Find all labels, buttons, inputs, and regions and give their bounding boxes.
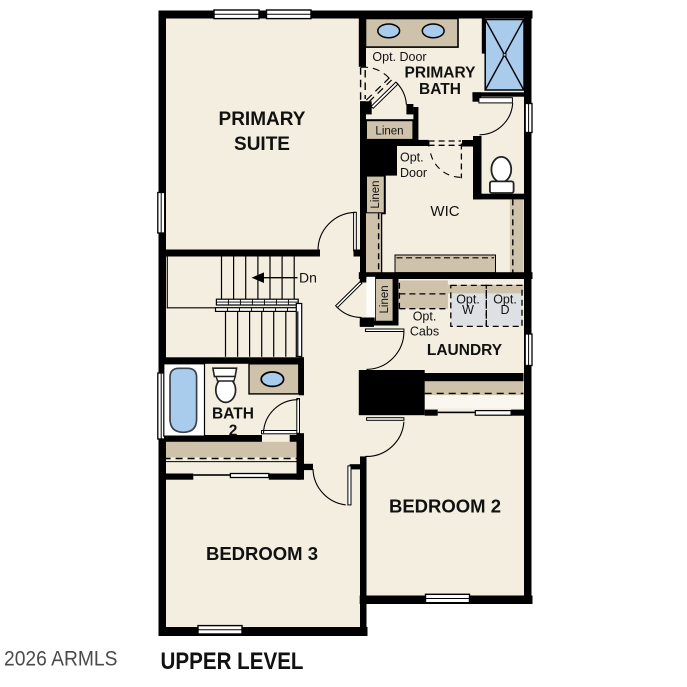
svg-text:SUITE: SUITE [234, 134, 290, 155]
svg-text:Opt. Door: Opt. Door [372, 50, 426, 64]
svg-text:LAUNDRY: LAUNDRY [427, 342, 503, 359]
svg-text:BEDROOM 3: BEDROOM 3 [206, 543, 318, 564]
svg-text:Opt.: Opt. [400, 151, 424, 165]
svg-text:PRIMARY: PRIMARY [219, 109, 306, 130]
svg-text:2: 2 [229, 423, 238, 440]
svg-text:Linen: Linen [370, 180, 382, 208]
svg-text:D: D [500, 303, 509, 317]
svg-text:Door: Door [400, 166, 427, 180]
svg-text:Linen: Linen [379, 285, 391, 313]
svg-text:Cabs: Cabs [410, 325, 439, 339]
svg-text:BEDROOM 2: BEDROOM 2 [389, 496, 501, 517]
svg-text:BATH: BATH [419, 81, 461, 98]
svg-text:WIC: WIC [430, 203, 459, 220]
svg-text:UPPER LEVEL: UPPER LEVEL [161, 648, 304, 675]
svg-text:W: W [462, 303, 474, 317]
svg-text:BATH: BATH [212, 406, 254, 423]
svg-text:PRIMARY: PRIMARY [405, 65, 477, 82]
svg-text:Opt.: Opt. [413, 310, 437, 324]
svg-text:Linen: Linen [375, 126, 403, 138]
svg-text:2026 ARMLS: 2026 ARMLS [4, 648, 118, 671]
svg-text:Dn: Dn [299, 269, 317, 285]
